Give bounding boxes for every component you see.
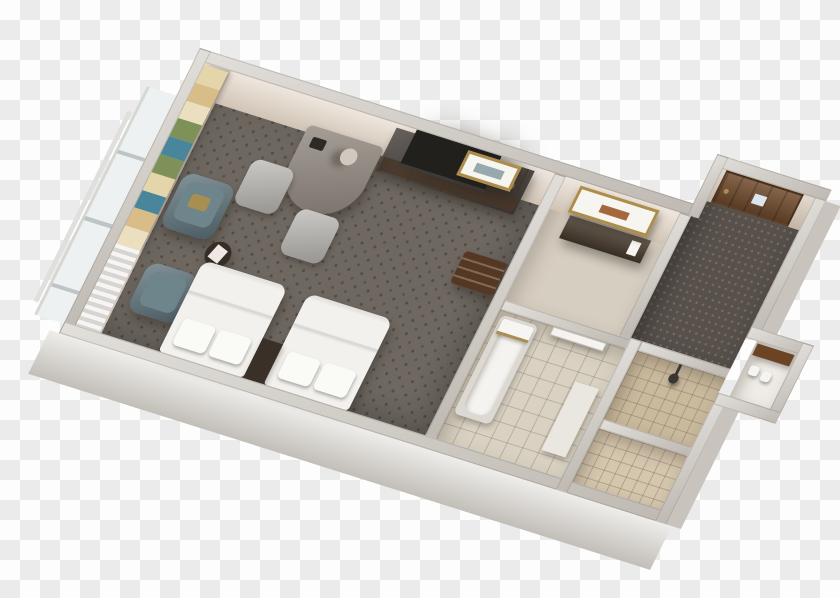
folded-towel (626, 240, 642, 256)
magazine (207, 244, 227, 264)
mirror-art (598, 204, 629, 220)
floor-plan-render (59, 48, 807, 524)
art-landscape (473, 163, 505, 180)
pillow (312, 362, 357, 399)
pillow (207, 329, 252, 366)
room-number-sign (751, 193, 768, 206)
desk-lamp (337, 146, 361, 167)
transparent-checkerboard-background (0, 0, 840, 598)
telephone (308, 137, 327, 152)
door-handle (723, 188, 730, 194)
